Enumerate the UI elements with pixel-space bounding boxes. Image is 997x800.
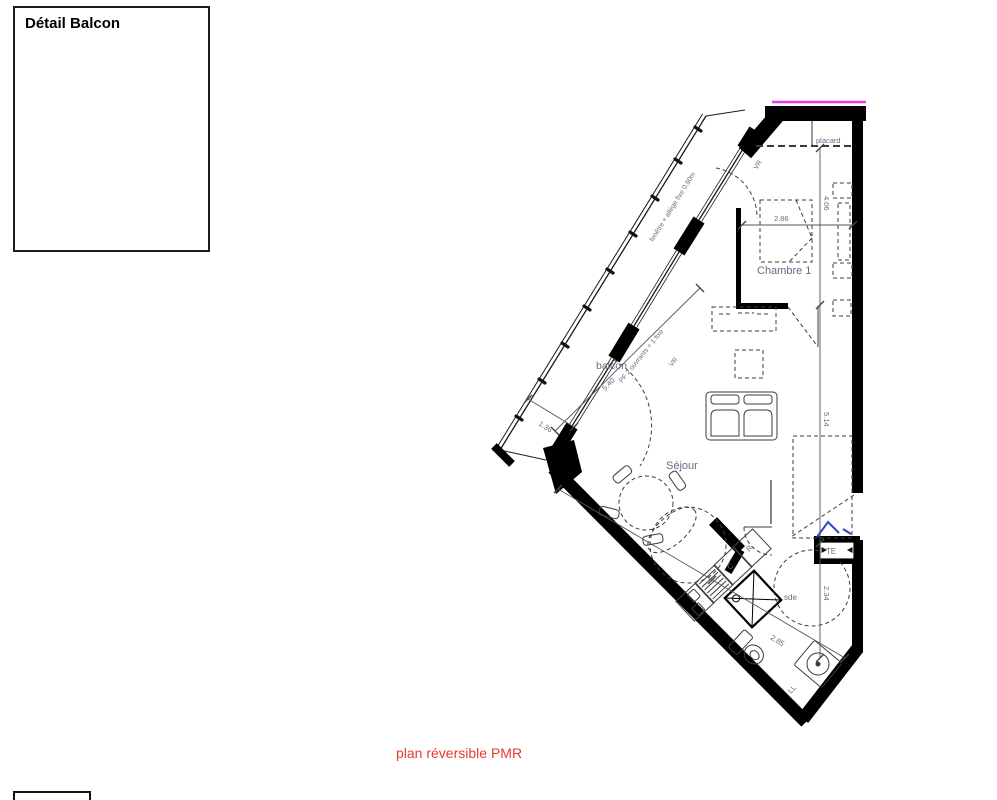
top-wall [765, 106, 866, 121]
facade-pier [614, 326, 634, 359]
second-detail-box-partial [13, 791, 91, 800]
bedroom-door-swing [788, 307, 818, 347]
dim-bathroom-width: 2.34 [822, 586, 831, 601]
label-washer: LL [786, 683, 798, 695]
room-label-closet: placard [816, 136, 841, 145]
detail-box-title: Détail Balcon [15, 8, 208, 32]
dim-bedroom-depth: 4.06 [822, 196, 831, 211]
entry-clearance-rect [793, 436, 852, 538]
label-te: TE [826, 547, 836, 556]
dim-bathroom-diag: 2.85 [769, 633, 786, 648]
railing-end-post [494, 446, 512, 464]
bathroom-wall [713, 521, 741, 550]
dim-balcony-width: 1.36 [537, 419, 554, 434]
dining-table [619, 476, 673, 530]
bedroom-wall-horizontal [736, 303, 788, 309]
nightstand [833, 263, 852, 278]
wardrobe [838, 203, 850, 260]
room-label-balcony: balcon [596, 360, 627, 372]
window-living [631, 250, 681, 327]
dim-bedroom-width: 2.86 [774, 214, 789, 223]
side-table [735, 350, 763, 378]
nightstand [833, 183, 852, 198]
walls [543, 106, 866, 722]
dim-hall-length: 5.14 [822, 412, 831, 427]
doors [614, 168, 854, 555]
balcony-door-swing [614, 360, 652, 466]
sideboard [712, 307, 776, 331]
sofa [706, 392, 777, 440]
shower [725, 571, 782, 628]
right-wall-upper [852, 121, 863, 493]
note-shutter-top: VR [753, 159, 764, 171]
room-label-bedroom: Chambre 1 [757, 265, 811, 277]
bedroom-wall-vertical [736, 208, 741, 307]
note-shutter-mid: VR [668, 356, 679, 368]
bed-fold-line [789, 238, 812, 262]
room-label-living: Séjour [666, 460, 698, 472]
facade-pier [679, 220, 699, 252]
plan-caption: plan réversible PMR [396, 745, 522, 761]
bed [760, 200, 812, 262]
dresser [833, 300, 851, 316]
bottom-right-wall [803, 648, 858, 719]
bottom-left-wall [553, 468, 806, 722]
balcony-railing [494, 110, 745, 464]
bed-fold-line [796, 200, 812, 238]
detail-box: Détail Balcon [13, 6, 210, 252]
room-label-bathroom: sde [784, 593, 797, 602]
page: balcon Séjour Chambre 1 placard sde 5.40… [0, 0, 997, 800]
bedroom-furniture [760, 183, 852, 316]
entry-door-blue-tick [843, 529, 851, 534]
